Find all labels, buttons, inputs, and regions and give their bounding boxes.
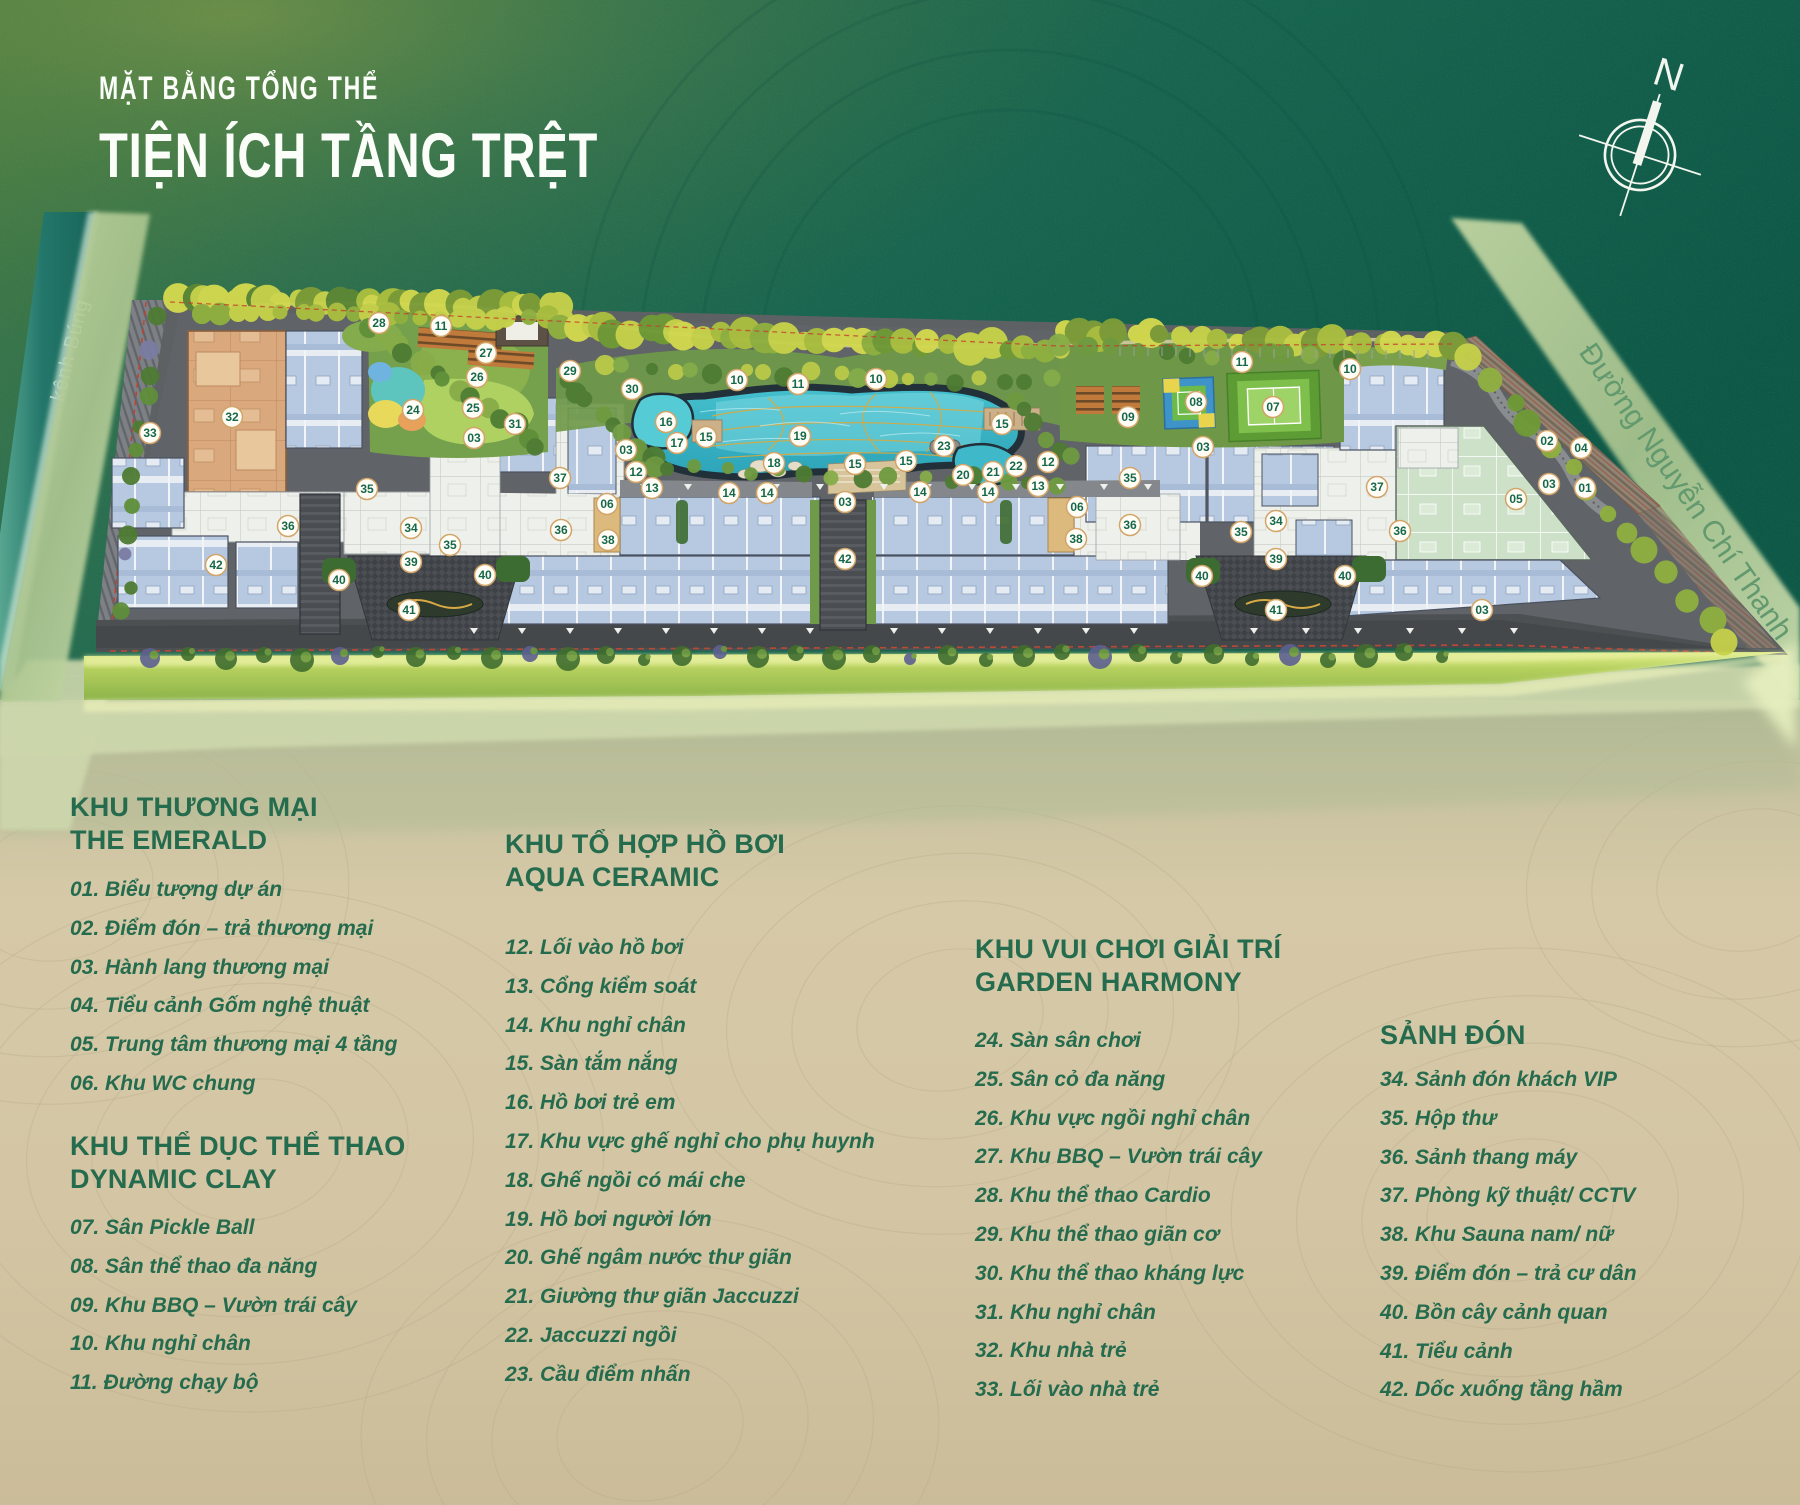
svg-text:40: 40 bbox=[1195, 569, 1209, 583]
svg-text:14: 14 bbox=[981, 485, 995, 499]
svg-text:36: 36 bbox=[1393, 524, 1407, 538]
svg-text:14: 14 bbox=[760, 486, 774, 500]
svg-text:02: 02 bbox=[1540, 434, 1554, 448]
svg-text:04: 04 bbox=[1574, 441, 1588, 455]
svg-text:15: 15 bbox=[899, 454, 913, 468]
svg-text:42: 42 bbox=[209, 558, 223, 572]
svg-text:41: 41 bbox=[1269, 603, 1283, 617]
svg-text:12: 12 bbox=[1041, 455, 1055, 469]
svg-text:11: 11 bbox=[792, 377, 805, 391]
svg-text:03: 03 bbox=[467, 431, 481, 445]
svg-text:03: 03 bbox=[838, 495, 852, 509]
svg-text:15: 15 bbox=[995, 417, 1009, 431]
svg-text:26: 26 bbox=[470, 370, 484, 384]
svg-text:38: 38 bbox=[601, 533, 615, 547]
svg-text:32: 32 bbox=[225, 410, 239, 424]
svg-text:03: 03 bbox=[619, 443, 633, 457]
svg-text:40: 40 bbox=[332, 573, 346, 587]
svg-text:10: 10 bbox=[730, 373, 744, 387]
svg-text:41: 41 bbox=[402, 603, 416, 617]
svg-text:38: 38 bbox=[1069, 532, 1083, 546]
svg-text:14: 14 bbox=[913, 485, 927, 499]
svg-text:15: 15 bbox=[699, 430, 713, 444]
svg-text:01: 01 bbox=[1578, 481, 1592, 495]
svg-text:29: 29 bbox=[563, 364, 577, 378]
svg-text:05: 05 bbox=[1509, 492, 1523, 506]
svg-text:37: 37 bbox=[1370, 480, 1384, 494]
svg-text:22: 22 bbox=[1009, 459, 1023, 473]
svg-text:24: 24 bbox=[406, 403, 420, 417]
svg-text:15: 15 bbox=[848, 457, 862, 471]
svg-text:40: 40 bbox=[478, 568, 492, 582]
svg-text:18: 18 bbox=[767, 456, 781, 470]
svg-text:11: 11 bbox=[1236, 355, 1249, 369]
svg-text:03: 03 bbox=[1475, 603, 1489, 617]
svg-text:19: 19 bbox=[793, 429, 807, 443]
svg-text:28: 28 bbox=[372, 316, 386, 330]
svg-text:16: 16 bbox=[659, 415, 673, 429]
svg-text:06: 06 bbox=[600, 497, 614, 511]
svg-text:17: 17 bbox=[670, 436, 684, 450]
svg-text:42: 42 bbox=[838, 552, 852, 566]
svg-text:13: 13 bbox=[645, 481, 659, 495]
svg-text:08: 08 bbox=[1189, 395, 1203, 409]
svg-text:23: 23 bbox=[937, 439, 951, 453]
svg-text:07: 07 bbox=[1266, 400, 1280, 414]
svg-text:35: 35 bbox=[443, 538, 457, 552]
svg-text:33: 33 bbox=[143, 426, 157, 440]
svg-text:20: 20 bbox=[956, 468, 970, 482]
svg-text:34: 34 bbox=[404, 521, 418, 535]
svg-text:11: 11 bbox=[435, 319, 448, 333]
svg-text:03: 03 bbox=[1542, 477, 1556, 491]
svg-text:35: 35 bbox=[1234, 525, 1248, 539]
svg-text:13: 13 bbox=[1031, 479, 1045, 493]
svg-text:39: 39 bbox=[1269, 552, 1283, 566]
svg-text:27: 27 bbox=[479, 346, 493, 360]
svg-text:35: 35 bbox=[360, 482, 374, 496]
svg-text:40: 40 bbox=[1338, 569, 1352, 583]
svg-text:30: 30 bbox=[625, 382, 639, 396]
svg-text:10: 10 bbox=[869, 372, 883, 386]
svg-text:31: 31 bbox=[508, 417, 522, 431]
svg-text:36: 36 bbox=[281, 519, 295, 533]
svg-text:36: 36 bbox=[1123, 518, 1137, 532]
svg-text:12: 12 bbox=[629, 465, 643, 479]
svg-text:25: 25 bbox=[466, 401, 480, 415]
svg-text:03: 03 bbox=[1196, 440, 1210, 454]
svg-text:21: 21 bbox=[986, 465, 1000, 479]
svg-text:36: 36 bbox=[554, 523, 568, 537]
svg-text:10: 10 bbox=[1343, 362, 1357, 376]
svg-text:37: 37 bbox=[553, 471, 567, 485]
svg-text:34: 34 bbox=[1269, 514, 1283, 528]
svg-text:06: 06 bbox=[1070, 500, 1084, 514]
svg-text:35: 35 bbox=[1123, 471, 1137, 485]
svg-text:39: 39 bbox=[404, 555, 418, 569]
svg-text:14: 14 bbox=[722, 486, 736, 500]
svg-text:09: 09 bbox=[1121, 410, 1135, 424]
